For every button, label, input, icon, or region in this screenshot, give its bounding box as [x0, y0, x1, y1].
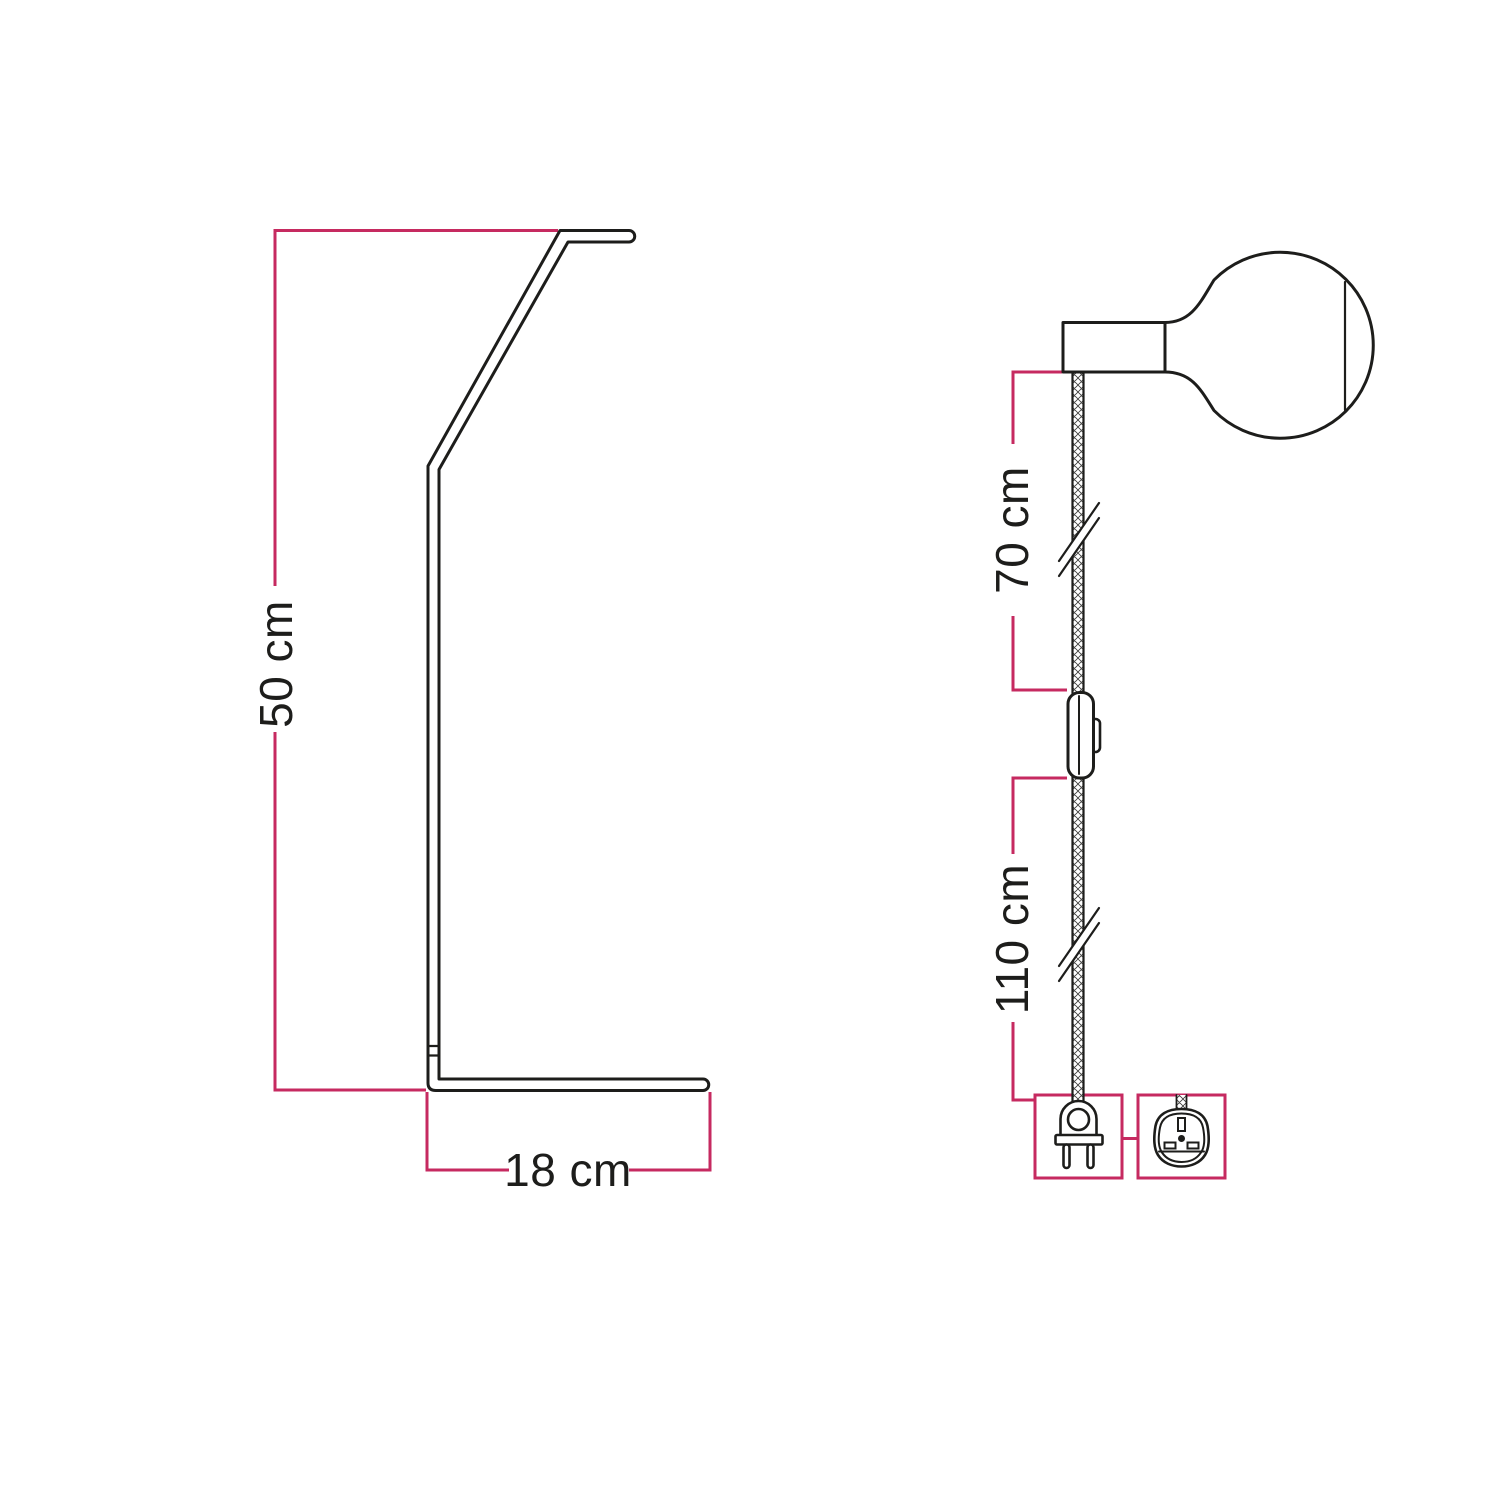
diagram-page: 50 cm 18 cm 70 cm 110 cm — [0, 0, 1500, 1500]
stand-outline — [428, 231, 709, 1091]
inline-switch-icon — [1068, 693, 1100, 779]
europlug-pin-right — [1088, 1145, 1094, 1169]
lower-cable-dimension: 110 cm — [986, 778, 1067, 1100]
dimension-line — [427, 1092, 509, 1170]
lamp-holder-icon — [1063, 323, 1165, 373]
upper-cable-dimension: 70 cm — [986, 372, 1067, 690]
europlug-circle — [1068, 1109, 1089, 1130]
stand-base-dimension: 18 cm — [427, 1092, 710, 1196]
upper-cable-label: 70 cm — [986, 466, 1038, 594]
pendant-lamp-head — [1063, 252, 1373, 438]
stand-joint-mark — [428, 1046, 439, 1056]
dimension-line — [275, 732, 426, 1090]
lamp-dimension-diagram: 50 cm 18 cm 70 cm 110 cm — [0, 0, 1500, 1500]
europlug-flange — [1056, 1135, 1103, 1145]
globe-bulb-icon — [1165, 252, 1373, 438]
uk-plug-center-dot — [1178, 1135, 1185, 1142]
europlug-pin-left — [1064, 1145, 1070, 1169]
lower-cable-label: 110 cm — [986, 864, 1038, 1014]
dimension-line — [1013, 372, 1062, 444]
dimension-line — [1013, 778, 1067, 854]
dimension-line — [1013, 616, 1067, 690]
stand-side-view — [428, 231, 709, 1091]
uk-three-pin-plug-icon — [1154, 1095, 1209, 1167]
dimension-line — [629, 1092, 710, 1170]
europlug-two-pin-icon — [1056, 1101, 1103, 1168]
switch-body — [1068, 693, 1094, 779]
dimension-line — [1013, 1022, 1036, 1100]
stand-base-label: 18 cm — [504, 1144, 632, 1196]
stand-height-dimension: 50 cm — [250, 231, 558, 1091]
stand-height-label: 50 cm — [250, 600, 302, 728]
dimension-line — [275, 231, 558, 587]
